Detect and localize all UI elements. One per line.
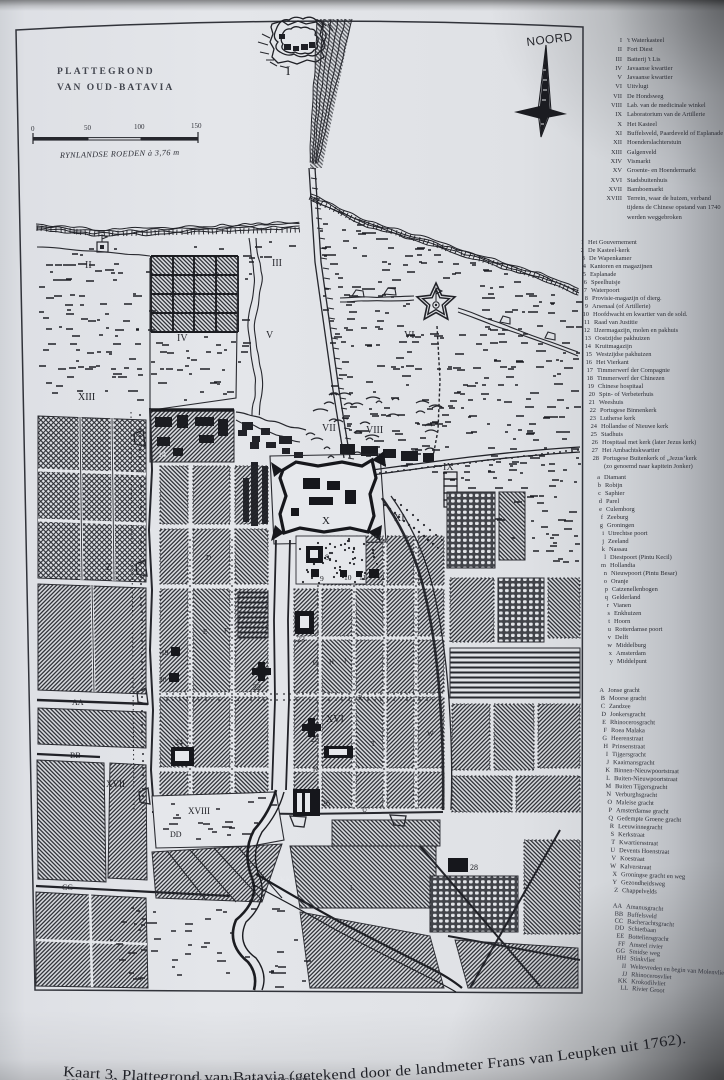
svg-text:Stadhuis: Stadhuis	[601, 431, 624, 438]
svg-text:Portugese Binnenkerk: Portugese Binnenkerk	[600, 407, 657, 414]
svg-text:V: V	[266, 330, 274, 341]
svg-text:Middelpunt: Middelpunt	[617, 658, 647, 665]
svg-text:Hospitaal met kerk (later Jezu: Hospitaal met kerk (later Jezus kerk)	[602, 439, 696, 446]
svg-text:T: T	[611, 839, 615, 846]
svg-text:8: 8	[585, 295, 588, 302]
svg-text:Q: Q	[608, 815, 613, 822]
svg-text:E: E	[602, 719, 606, 726]
svg-text:V: V	[617, 74, 622, 81]
svg-text:Z: Z	[614, 887, 618, 894]
svg-text:11: 11	[584, 319, 590, 326]
svg-text:b: b	[598, 482, 601, 489]
svg-text:Buiten-Nieuwpoortstraat: Buiten-Nieuwpoortstraat	[614, 775, 678, 783]
svg-text:20: 20	[589, 391, 595, 398]
svg-text:Speelhuisje: Speelhuisje	[591, 279, 621, 286]
svg-text:L: L	[350, 884, 354, 892]
svg-text:VIII: VIII	[366, 425, 383, 436]
svg-text:Catzenellenbogen: Catzenellenbogen	[612, 586, 659, 593]
svg-text:Vianen: Vianen	[613, 602, 632, 609]
svg-text:9: 9	[585, 303, 588, 310]
svg-text:25: 25	[311, 735, 319, 744]
svg-text:X: X	[612, 871, 617, 878]
svg-text:L: L	[606, 775, 610, 782]
svg-text:Diamant: Diamant	[604, 474, 626, 481]
svg-text:Portugese Buitenkerk of „Jezus: Portugese Buitenkerk of „Jezus’kerk	[603, 455, 698, 462]
svg-text:XVII: XVII	[106, 779, 125, 789]
svg-text:K: K	[313, 765, 318, 773]
svg-text:XIII: XIII	[78, 392, 95, 403]
svg-text:S: S	[610, 831, 614, 838]
svg-text:10: 10	[583, 311, 589, 318]
svg-text:I: I	[606, 751, 608, 758]
svg-text:Het Gouvernement: Het Gouvernement	[588, 239, 637, 246]
svg-text:DD: DD	[615, 924, 625, 932]
svg-text:Esplanade: Esplanade	[590, 271, 616, 278]
svg-text:Saphier: Saphier	[605, 490, 625, 497]
svg-text:Hoorn: Hoorn	[614, 618, 631, 625]
svg-text:1: 1	[581, 239, 584, 246]
svg-text:8: 8	[325, 553, 329, 562]
svg-text:Nassau: Nassau	[609, 546, 628, 553]
svg-text:Bamboemarkt: Bamboemarkt	[627, 186, 663, 193]
svg-text:24: 24	[591, 423, 598, 430]
svg-text:B: B	[601, 695, 605, 702]
svg-text:Culemborg: Culemborg	[606, 506, 635, 513]
svg-text:Chinese hospitaal: Chinese hospitaal	[598, 383, 643, 390]
svg-text:R: R	[358, 694, 363, 702]
svg-text:XVI: XVI	[326, 714, 344, 725]
svg-text:2: 2	[581, 247, 584, 254]
svg-text:14: 14	[585, 343, 592, 350]
svg-text:II: II	[85, 260, 92, 271]
svg-text:H: H	[329, 658, 334, 666]
svg-text:XV: XV	[613, 167, 623, 174]
svg-text:Terrein, waar de huizen, verba: Terrein, waar de huizen, verband	[627, 195, 712, 202]
svg-text:Hollandia: Hollandia	[610, 562, 635, 569]
svg-text:Het Vierkant: Het Vierkant	[596, 359, 629, 366]
svg-text:De Hondsweg: De Hondsweg	[627, 93, 664, 100]
svg-text:Amsterdam: Amsterdam	[616, 650, 646, 657]
svg-text:26: 26	[592, 439, 598, 446]
svg-text:Roea Malaka: Roea Malaka	[611, 727, 645, 734]
svg-text:19: 19	[161, 648, 169, 657]
svg-text:Diestpoort (Pintu Kecil): Diestpoort (Pintu Kecil)	[610, 554, 672, 561]
svg-text:IV: IV	[615, 65, 622, 72]
svg-text:25: 25	[591, 431, 597, 438]
svg-text:Buffelsveld, Paardeveld of Esp: Buffelsveld, Paardeveld of Esplanade	[627, 130, 723, 137]
svg-text:26: 26	[322, 799, 330, 808]
svg-text:11: 11	[359, 573, 366, 582]
svg-text:22: 22	[590, 407, 596, 414]
svg-text:VII: VII	[322, 423, 336, 434]
svg-text:H: H	[603, 743, 608, 750]
svg-text:Zeeland: Zeeland	[608, 538, 629, 545]
svg-text:VI: VI	[404, 330, 415, 341]
svg-text:j: j	[601, 538, 604, 545]
svg-text:Heerenstraat: Heerenstraat	[611, 735, 644, 742]
svg-text:Stadsbuitenhuis: Stadsbuitenhuis	[627, 177, 668, 184]
svg-text:VII: VII	[613, 93, 622, 100]
svg-text:150: 150	[191, 122, 202, 130]
svg-text:'t Waterkasteel: 't Waterkasteel	[627, 37, 664, 44]
svg-text:17: 17	[587, 367, 594, 374]
svg-text:Jonse gracht: Jonse gracht	[608, 687, 640, 694]
svg-text:0: 0	[31, 125, 35, 133]
svg-text:Kerkstraat: Kerkstraat	[618, 831, 645, 839]
svg-text:Laboratorium van de Artillerie: Laboratorium van de Artillerie	[627, 111, 705, 118]
svg-text:23: 23	[590, 415, 596, 422]
svg-text:IX: IX	[615, 111, 622, 118]
svg-text:Spin- of Verbeterhuis: Spin- of Verbeterhuis	[599, 391, 654, 398]
svg-text:Enkhuizen: Enkhuizen	[614, 610, 642, 617]
svg-text:D: D	[206, 554, 211, 562]
svg-text:o: o	[604, 578, 607, 585]
svg-text:Raad van Justitie: Raad van Justitie	[594, 319, 638, 326]
svg-text:Oranje: Oranje	[611, 578, 629, 585]
svg-text:Batterij 't Lis: Batterij 't Lis	[627, 56, 661, 63]
svg-text:Uitvlugt: Uitvlugt	[627, 83, 649, 90]
svg-text:XIII: XIII	[611, 149, 622, 156]
svg-text:Arsenaal (of Artillerie): Arsenaal (of Artillerie)	[592, 303, 651, 310]
svg-text:III: III	[616, 56, 622, 63]
svg-text:5: 5	[583, 271, 586, 278]
svg-text:27: 27	[592, 447, 599, 454]
svg-text:6: 6	[584, 279, 587, 286]
svg-text:Hoenderslachterstuin: Hoenderslachterstuin	[627, 139, 682, 146]
svg-text:Kaaimansgracht: Kaaimansgracht	[613, 759, 655, 767]
svg-text:EE: EE	[616, 932, 624, 940]
svg-text:A: A	[599, 687, 604, 694]
svg-text:II: II	[618, 46, 622, 53]
svg-text:Jonkersgracht: Jonkersgracht	[610, 711, 646, 718]
svg-text:KK: KK	[280, 875, 292, 884]
svg-text:Prinsenstraat: Prinsenstraat	[612, 743, 645, 750]
svg-text:l: l	[604, 554, 606, 561]
svg-text:100: 100	[134, 123, 145, 131]
svg-text:12: 12	[584, 327, 590, 334]
svg-text:Lutherse kerk: Lutherse kerk	[600, 415, 636, 422]
svg-text:w: w	[607, 642, 612, 649]
svg-text:V: V	[611, 855, 616, 862]
svg-text:werden weggebroken: werden weggebroken	[627, 214, 683, 221]
svg-text:N: N	[606, 791, 611, 798]
svg-text:Delft: Delft	[615, 634, 628, 641]
svg-text:Zeeburg: Zeeburg	[607, 514, 629, 521]
svg-text:(zo genoemd naar kapitein Jonk: (zo genoemd naar kapitein Jonker)	[604, 463, 693, 470]
svg-text:De Wapenkamer: De Wapenkamer	[589, 255, 632, 262]
svg-text:VI: VI	[615, 83, 622, 90]
svg-text:Moorse gracht: Moorse gracht	[609, 695, 646, 702]
svg-text:VIII: VIII	[611, 102, 622, 109]
svg-text:Gelderland: Gelderland	[612, 594, 641, 601]
svg-text:Groningen: Groningen	[607, 522, 635, 529]
svg-text:U: U	[610, 847, 615, 854]
svg-text:Kantoren en magazijnen: Kantoren en magazijnen	[590, 263, 653, 270]
svg-text:M: M	[605, 783, 611, 790]
svg-text:G: G	[602, 735, 607, 742]
svg-text:Z: Z	[106, 562, 112, 572]
svg-text:Chappelvelds: Chappelvelds	[622, 887, 658, 895]
svg-text:24: 24	[175, 738, 183, 747]
svg-text:Javaanse kwartier: Javaanse kwartier	[627, 65, 673, 72]
svg-text:9: 9	[320, 574, 324, 583]
svg-text:12: 12	[377, 573, 385, 582]
svg-text:X: X	[322, 515, 330, 527]
svg-text:Buiten Tijgersgracht: Buiten Tijgersgracht	[615, 783, 668, 791]
svg-text:O: O	[607, 799, 612, 806]
svg-text:F: F	[603, 727, 607, 734]
svg-text:3: 3	[582, 255, 585, 262]
svg-text:p: p	[605, 586, 608, 593]
svg-text:50: 50	[84, 124, 92, 132]
svg-text:Waterpoort: Waterpoort	[591, 287, 620, 294]
svg-text:F: F	[224, 627, 228, 635]
svg-text:LL: LL	[620, 984, 628, 992]
svg-text:Zandzee: Zandzee	[609, 703, 631, 710]
svg-text:Koestraat: Koestraat	[620, 855, 645, 863]
svg-text:Parel: Parel	[606, 498, 619, 505]
svg-text:i: i	[602, 530, 604, 537]
svg-text:tijdens de Chinese opstand van: tijdens de Chinese opstand van 1740	[627, 204, 721, 211]
svg-text:Oostzijdse pakhuizen: Oostzijdse pakhuizen	[595, 335, 651, 342]
svg-text:14: 14	[158, 450, 166, 459]
svg-text:VAN OUD-BATAVIA: VAN OUD-BATAVIA	[57, 83, 174, 93]
svg-text:Middelburg: Middelburg	[616, 642, 647, 649]
svg-text:Leeuwinnegracht: Leeuwinnegracht	[618, 823, 663, 831]
svg-text:D: D	[601, 711, 606, 718]
svg-text:I: I	[620, 37, 622, 44]
svg-text:XVIII: XVIII	[606, 195, 622, 202]
svg-text:Robijn: Robijn	[605, 482, 623, 489]
svg-text:IV: IV	[177, 333, 188, 344]
svg-text:U: U	[362, 806, 367, 814]
svg-text:15: 15	[586, 351, 592, 358]
svg-text:a: a	[597, 474, 600, 481]
svg-text:23: 23	[297, 635, 305, 644]
svg-text:Hoofdwacht en kwartier van de: Hoofdwacht en kwartier van de sold.	[593, 311, 688, 318]
svg-text:Tijgersgracht: Tijgersgracht	[612, 751, 646, 758]
svg-text:Het Kasteel: Het Kasteel	[627, 121, 657, 128]
svg-text:IJzermagazijn, molen en pakhui: IJzermagazijn, molen en pakhuis	[594, 327, 679, 334]
svg-text:Lab. van de medicinale winkel: Lab. van de medicinale winkel	[627, 102, 706, 109]
svg-text:Maleise gracht: Maleise gracht	[616, 799, 654, 807]
svg-text:m: m	[601, 562, 606, 569]
svg-text:XII: XII	[613, 139, 622, 146]
svg-text:19: 19	[588, 383, 594, 390]
svg-text:Amsterdamse gracht: Amsterdamse gracht	[616, 807, 669, 815]
svg-text:AA: AA	[613, 902, 623, 910]
svg-text:t: t	[608, 618, 610, 625]
svg-text:XIV: XIV	[611, 158, 623, 165]
svg-text:Fort Diest: Fort Diest	[627, 46, 653, 53]
svg-text:Utrechtse poort: Utrechtse poort	[608, 530, 648, 537]
svg-text:X: X	[617, 121, 622, 128]
svg-text:Westzijdse pakhuizen: Westzijdse pakhuizen	[596, 351, 652, 358]
svg-text:Javaanse kwartier: Javaanse kwartier	[627, 74, 673, 81]
svg-text:20: 20	[159, 675, 167, 684]
svg-text:c: c	[598, 490, 601, 497]
svg-text:22: 22	[253, 683, 261, 692]
svg-text:G: G	[313, 659, 318, 667]
svg-text:Weeshuis: Weeshuis	[599, 399, 624, 406]
svg-text:I: I	[286, 63, 290, 78]
svg-text:Timmerwerf der Chinezen: Timmerwerf der Chinezen	[597, 375, 665, 382]
svg-text:T: T	[371, 740, 376, 748]
svg-text:13: 13	[585, 335, 591, 342]
svg-text:10: 10	[344, 573, 352, 582]
svg-text:C: C	[601, 703, 605, 710]
svg-text:Groente- en Hoendermarkt: Groente- en Hoendermarkt	[627, 167, 696, 174]
svg-text:II: II	[622, 963, 627, 970]
svg-text:15: 15	[247, 502, 255, 510]
svg-text:W: W	[427, 730, 434, 738]
svg-text:Y: Y	[612, 879, 617, 886]
svg-text:XVII: XVII	[609, 186, 623, 193]
svg-text:Nieuwpoort (Pintu Besar): Nieuwpoort (Pintu Besar)	[611, 570, 677, 577]
svg-text:XI: XI	[615, 130, 622, 137]
svg-text:e: e	[599, 506, 602, 513]
svg-text:Provisie-magazijn of dierg.: Provisie-magazijn of dierg.	[592, 295, 662, 302]
svg-text:Kwartiersstraat: Kwartiersstraat	[619, 839, 658, 847]
svg-text:Vismarkt: Vismarkt	[627, 158, 651, 165]
svg-text:DD: DD	[170, 830, 182, 839]
svg-text:XVI: XVI	[611, 177, 622, 184]
svg-text:28: 28	[470, 863, 478, 872]
svg-text:De Kasteel-kerk: De Kasteel-kerk	[588, 247, 630, 254]
svg-text:Verburghsgracht: Verburghsgracht	[615, 791, 657, 799]
svg-text:18: 18	[587, 375, 593, 382]
svg-text:XVIII: XVIII	[188, 806, 210, 816]
svg-text:28: 28	[593, 455, 599, 462]
svg-text:HH: HH	[617, 954, 627, 962]
svg-text:P: P	[608, 807, 612, 814]
svg-text:Hollandse of Nieuwe kerk: Hollandse of Nieuwe kerk	[601, 423, 669, 430]
svg-text:Kalverstraat: Kalverstraat	[620, 863, 652, 871]
svg-text:Kruitmagazijn: Kruitmagazijn	[595, 343, 633, 350]
svg-text:Binnen-Nieuwpoortstraat: Binnen-Nieuwpoortstraat	[614, 767, 679, 775]
svg-text:K: K	[605, 767, 610, 774]
svg-text:Timmerwerf der Compagnie: Timmerwerf der Compagnie	[597, 367, 670, 374]
svg-text:III: III	[272, 258, 282, 269]
svg-text:21: 21	[589, 399, 595, 406]
svg-text:Rhinocerosgracht: Rhinocerosgracht	[610, 719, 655, 726]
svg-text:Rotterdamse poort: Rotterdamse poort	[615, 626, 663, 633]
svg-text:Galgenveld: Galgenveld	[627, 149, 657, 156]
svg-text:16: 16	[586, 359, 592, 366]
svg-text:Het Ambachtskwartier: Het Ambachtskwartier	[602, 447, 661, 454]
svg-text:PLATTEGROND: PLATTEGROND	[57, 67, 155, 77]
svg-text:E: E	[203, 628, 207, 636]
